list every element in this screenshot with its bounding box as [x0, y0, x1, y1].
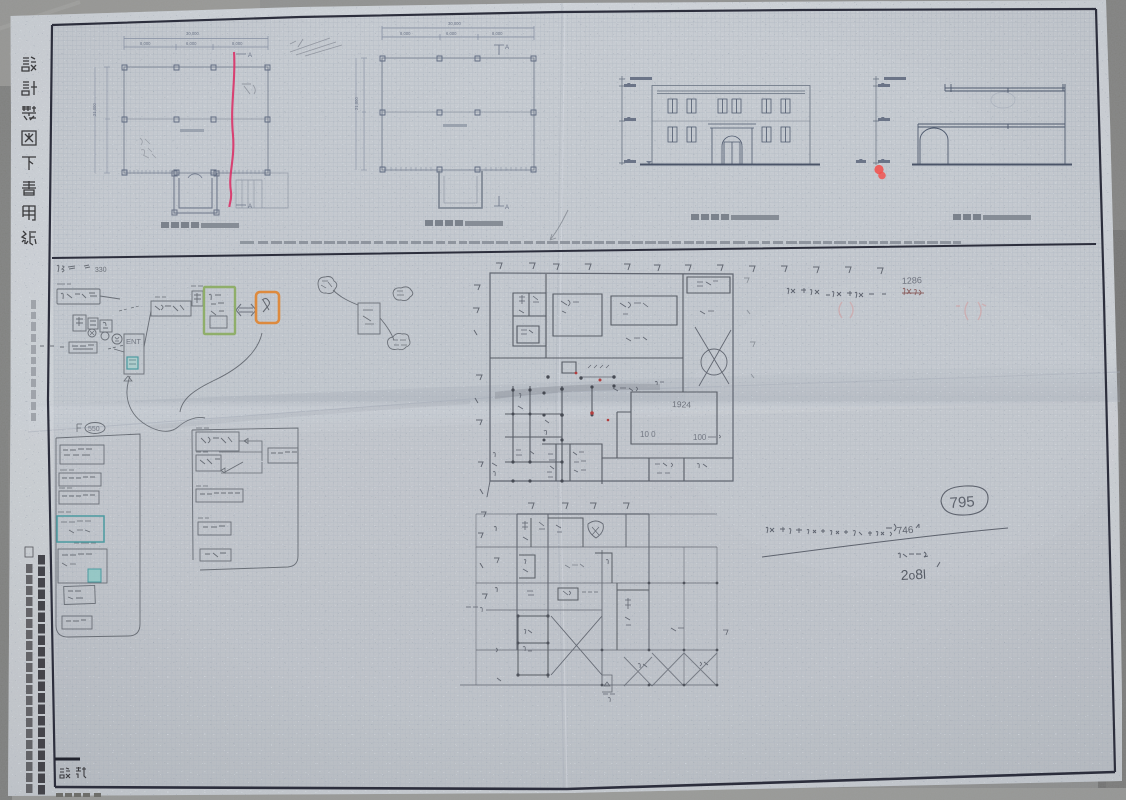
svg-text:21,000: 21,000	[354, 97, 359, 110]
svg-text:ENT: ENT	[126, 337, 141, 346]
svg-text:10 0: 10 0	[640, 430, 656, 439]
svg-text:8,000: 8,000	[140, 41, 151, 46]
svg-text:1286: 1286	[902, 275, 923, 286]
svg-text:2o8l: 2o8l	[900, 566, 926, 583]
svg-text:A: A	[505, 205, 509, 211]
svg-text:746: 746	[896, 525, 914, 537]
svg-text:6,000: 6,000	[446, 31, 457, 36]
svg-text:1924: 1924	[672, 399, 692, 410]
svg-text:550: 550	[88, 426, 100, 433]
svg-text:795: 795	[949, 493, 975, 512]
svg-text:21,000: 21,000	[92, 103, 97, 116]
svg-text:6,000: 6,000	[186, 41, 197, 46]
svg-text:8,000: 8,000	[232, 41, 243, 46]
svg-text:A: A	[248, 204, 252, 210]
svg-text:30,000: 30,000	[186, 31, 199, 36]
svg-text:A: A	[248, 53, 252, 59]
svg-text:330: 330	[95, 267, 107, 274]
svg-text:A: A	[505, 45, 509, 51]
svg-text:100: 100	[693, 433, 707, 442]
svg-text:8,000: 8,000	[492, 31, 503, 36]
svg-text:8,000: 8,000	[400, 31, 411, 36]
svg-text:30,000: 30,000	[448, 21, 461, 26]
